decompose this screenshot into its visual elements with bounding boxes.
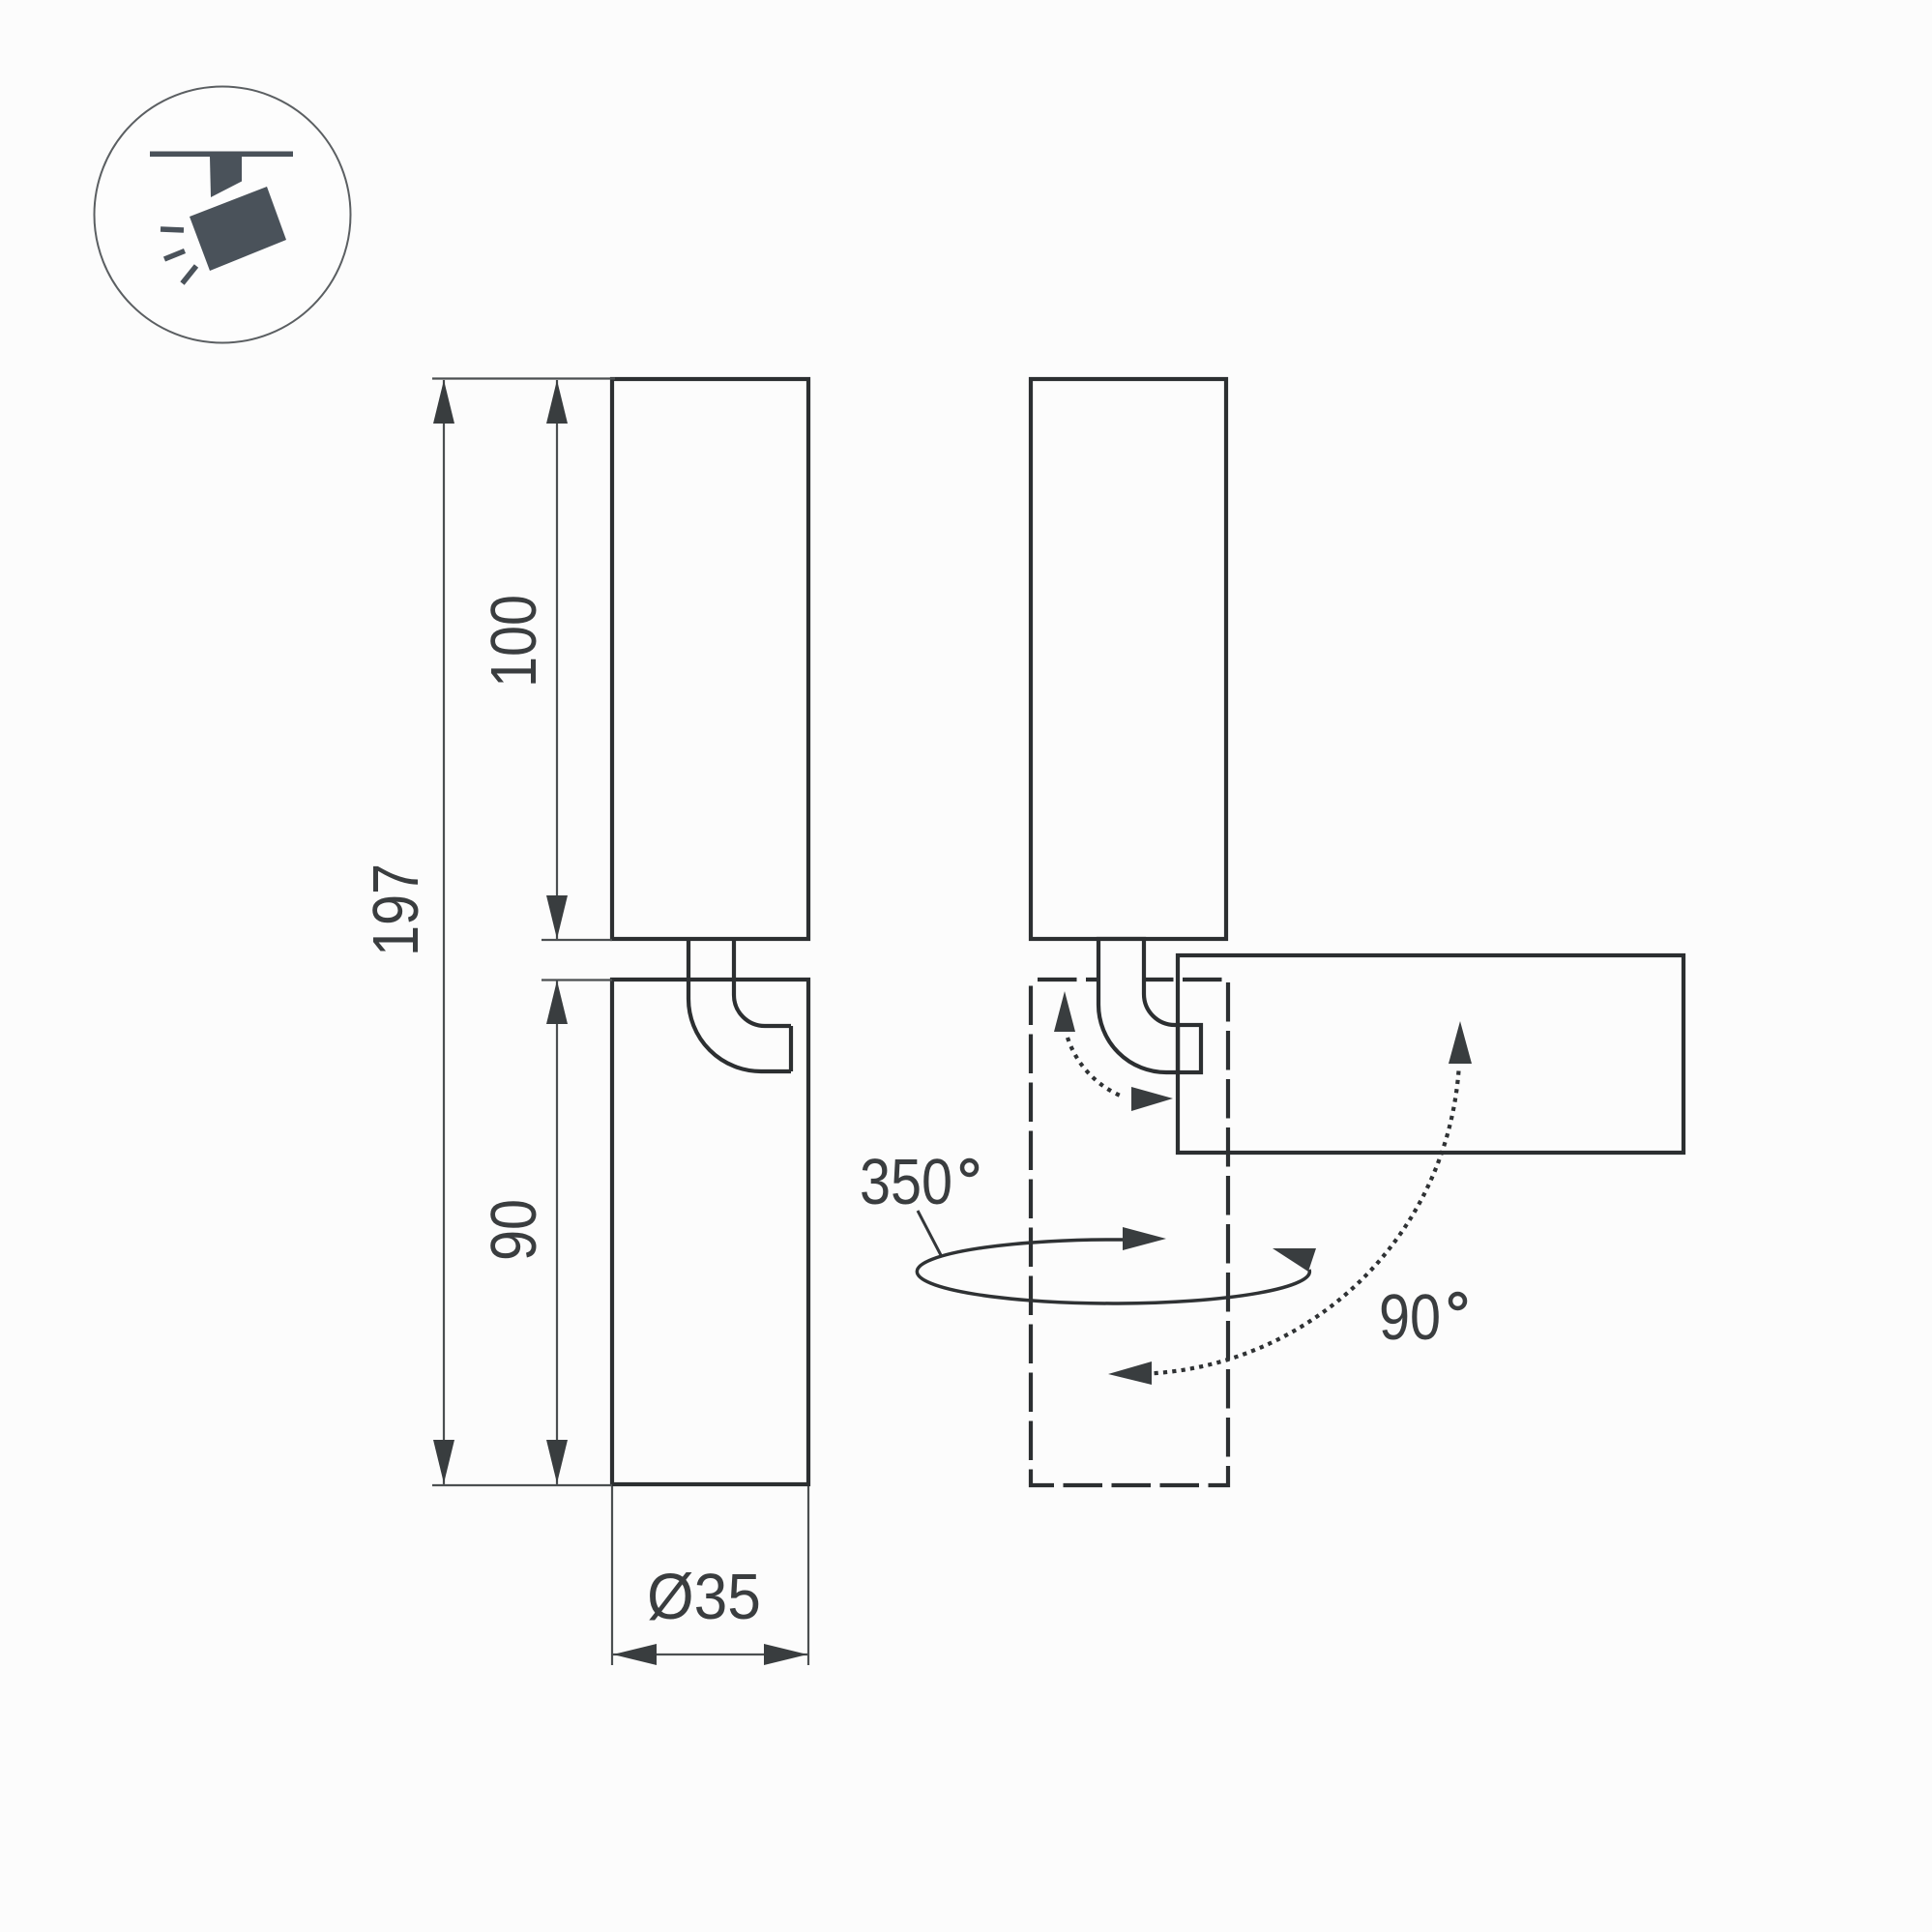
svg-text:100: 100 <box>478 595 550 688</box>
svg-text:Ø35: Ø35 <box>647 1560 761 1633</box>
svg-text:197: 197 <box>360 864 432 956</box>
svg-text:90: 90 <box>478 1199 550 1261</box>
svg-text:350: 350 <box>860 1146 952 1218</box>
svg-text:90: 90 <box>1379 1281 1441 1354</box>
